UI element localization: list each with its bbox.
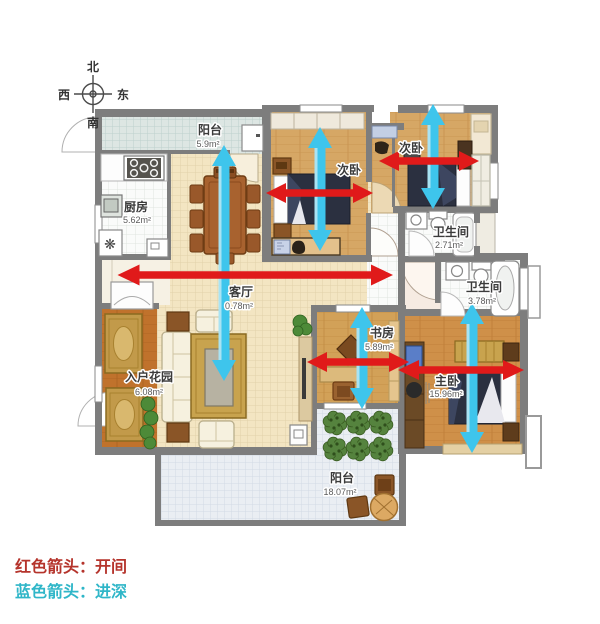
svg-text:阳台: 阳台 [198, 122, 222, 137]
svg-text:0.78m²: 0.78m² [225, 301, 253, 311]
svg-text:❋: ❋ [104, 236, 116, 252]
svg-text:阳台: 阳台 [330, 470, 354, 485]
svg-text:15.96m²: 15.96m² [429, 389, 462, 399]
svg-text:北: 北 [87, 59, 99, 74]
svg-text:主卧: 主卧 [435, 373, 459, 388]
svg-text:5.89m²: 5.89m² [365, 342, 393, 352]
svg-text:客厅: 客厅 [228, 284, 253, 299]
svg-text:6.08m²: 6.08m² [135, 387, 163, 397]
svg-text:卫生间: 卫生间 [466, 279, 502, 294]
svg-text:3.78m²: 3.78m² [468, 296, 496, 306]
svg-text:卫生间: 卫生间 [433, 224, 469, 239]
svg-text:书房: 书房 [370, 325, 394, 340]
svg-text:2.71m²: 2.71m² [435, 240, 463, 250]
svg-text:次卧: 次卧 [337, 162, 361, 177]
svg-text:蓝色箭头：进深: 蓝色箭头：进深 [15, 582, 127, 601]
svg-text:次卧: 次卧 [399, 140, 423, 155]
svg-text:厨房: 厨房 [124, 199, 148, 214]
svg-text:东: 东 [117, 87, 129, 102]
svg-text:红色箭头：开间: 红色箭头：开间 [15, 557, 127, 576]
svg-text:18.07m²: 18.07m² [323, 487, 356, 497]
svg-text:5.62m²: 5.62m² [123, 215, 151, 225]
svg-text:入户花园: 入户花园 [125, 369, 173, 384]
svg-text:西: 西 [58, 88, 70, 102]
svg-text:5.9m²: 5.9m² [196, 139, 219, 149]
svg-text:南: 南 [87, 115, 99, 130]
